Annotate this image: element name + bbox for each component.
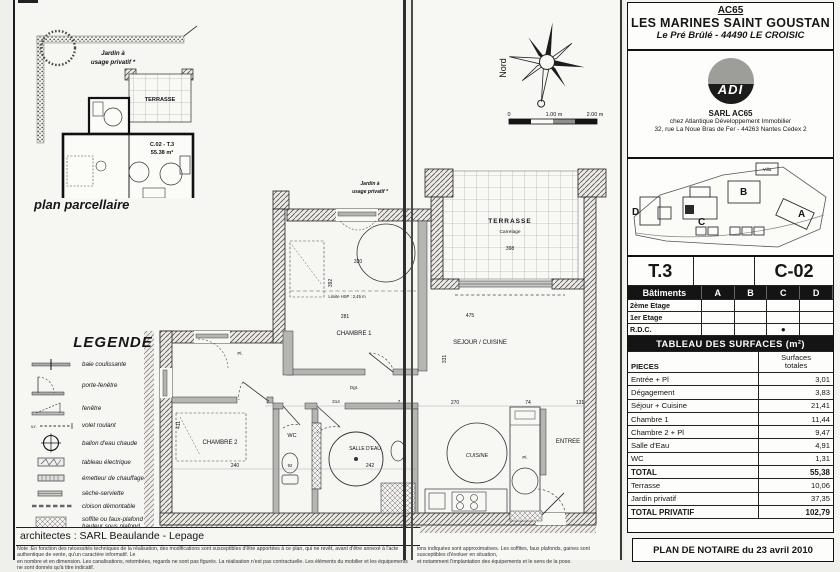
- surface-value: 37,35: [759, 493, 833, 505]
- closet-shelf: [515, 411, 535, 419]
- floor-cell: [702, 312, 735, 323]
- kitchen-sink: [429, 493, 445, 509]
- floor-row: 1er Etage: [628, 312, 833, 324]
- dim: 331: [442, 355, 448, 364]
- surfaces-title: TABLEAU DES SURFACES (m²): [628, 336, 833, 352]
- room-label-entree: ENTREE: [556, 439, 580, 445]
- floor-cell: [767, 312, 800, 323]
- legend-item: sèche-serviette: [24, 487, 202, 499]
- surface-value: 1,31: [759, 453, 833, 465]
- main-floor-plan: TERRASSE Carrelage Jardin à usage privat…: [140, 163, 625, 535]
- stove-burners: [457, 495, 478, 510]
- floor-label: 2ème Etage: [628, 300, 702, 311]
- page-edge-line: [13, 0, 15, 560]
- scale-bar: 0 1.00 m 2.00 m: [503, 110, 603, 128]
- unit-code: C-02: [755, 257, 833, 285]
- fine-print-right: ions indiquées sont approximatives. Les …: [417, 546, 617, 565]
- svg-text:v.r.: v.r.: [31, 424, 37, 429]
- terrace-floor: [443, 171, 578, 279]
- room-label-chambre1: CHAMBRE 1: [336, 331, 372, 337]
- dimensions: 320 281 392 475 398 331 240 411 92 242 7…: [176, 246, 584, 469]
- surface-label: Jardin privatif: [628, 493, 759, 505]
- removable-partition-icon: [24, 501, 82, 511]
- surface-value: 11,44: [759, 413, 833, 425]
- dim: 281: [341, 314, 350, 320]
- room-label-salle-eau: SALLE D'EAU: [349, 446, 381, 452]
- notary-plan-stamp: PLAN DE NOTAIRE du 23 avril 2010: [632, 538, 834, 562]
- dim: 475: [466, 313, 475, 319]
- dim: 398: [506, 246, 515, 252]
- surface-value: 3,83: [759, 386, 833, 398]
- building-label-b: B: [740, 187, 747, 198]
- north-compass: Nord: [492, 16, 596, 108]
- wall: [552, 279, 584, 289]
- room-label-terrasse: TERRASSE: [488, 218, 531, 225]
- col-b: B: [735, 286, 768, 299]
- fold-line-right: [620, 0, 622, 560]
- surface-row: Salle d'Eau 4,91: [628, 439, 833, 452]
- unit-id-row: T.3 C-02: [628, 257, 833, 286]
- parcel-caption: plan parcellaire: [34, 197, 129, 212]
- surface-row: Entrée + Pl 3,01: [628, 373, 833, 386]
- legend-item: porte-fenêtre: [24, 373, 202, 397]
- parcel-terrace-label: TERRASSE: [145, 97, 176, 103]
- surface-row: Jardin privatif 37,35: [628, 493, 833, 506]
- legend: LEGENDE baie coulissante porte-fenêtre f…: [24, 334, 202, 541]
- partition-wc-west: [273, 409, 279, 513]
- legend-item-label: tableau électrique: [82, 459, 131, 466]
- fine-print-line: en nombre et en dimension. Les canalisat…: [17, 559, 411, 572]
- architects-credit: architectes : SARL Beaulande - Lepage: [16, 527, 420, 546]
- hedge-end-tick: [184, 26, 197, 36]
- site-plan: A B C D Villa: [628, 159, 832, 253]
- partition: [312, 409, 318, 423]
- surface-label: TOTAL: [628, 466, 759, 478]
- surfaces-col-totales: Surfaces totales: [759, 352, 833, 372]
- dim: 242: [366, 463, 375, 469]
- closet-label: Pl.: [237, 351, 242, 356]
- dim: 320: [354, 259, 363, 265]
- fine-print-left: Note :En fonction des nécessités techniq…: [17, 546, 411, 572]
- hedge-top: [37, 36, 184, 43]
- dim: 74: [525, 400, 531, 406]
- water-heater-icon: [24, 433, 82, 453]
- floor-row: 2ème Etage: [628, 300, 833, 312]
- dim: 92: [288, 463, 293, 468]
- radiator-icon: [24, 471, 82, 485]
- garden-label-line1: Jardin à: [101, 50, 125, 57]
- surface-row-total: TOTAL 55,38: [628, 466, 833, 479]
- developer-block: ADI SARL AC65 chez Atlantique Développem…: [627, 50, 834, 158]
- fold-line-left-inner: [411, 0, 413, 560]
- scale-one: 1.00 m: [546, 112, 563, 118]
- developer-line1: chez Atlantique Développement Immobilier: [628, 118, 833, 126]
- legend-item: tableau électrique: [24, 455, 202, 469]
- building-label-c: C: [698, 217, 705, 228]
- legend-item: fenêtre: [24, 399, 202, 417]
- developer-line2: 32, rue La Noue Bras de Fer - 44263 Nant…: [628, 126, 833, 134]
- legend-item: émetteur de chauffage: [24, 471, 202, 485]
- surface-label: Chambre 1: [628, 413, 759, 425]
- dim: 240: [231, 463, 240, 469]
- surface-label: Chambre 2 + Pl: [628, 426, 759, 438]
- empty-row: [628, 519, 833, 532]
- surface-row: Terrasse 10,06: [628, 479, 833, 492]
- surface-label: WC: [628, 453, 759, 465]
- project-ref: AC65: [628, 5, 833, 16]
- window: [338, 212, 376, 216]
- surface-row: Dégagement 3,83: [628, 386, 833, 399]
- floor-cell: [735, 324, 768, 335]
- floor-label: R.D.C.: [628, 324, 702, 335]
- parcel-area-label: 55.38 m²: [151, 149, 174, 156]
- shower-soffit: [381, 483, 415, 513]
- legend-item-label: ballon d'eau chaude: [82, 440, 137, 447]
- legend-item: ballon d'eau chaude: [24, 433, 202, 453]
- legend-item: cloison démontable: [24, 501, 202, 511]
- garden-label-line2: usage privatif *: [352, 189, 389, 195]
- project-title: LES MARINES SAINT GOUSTAN: [628, 16, 833, 30]
- building-label-a: A: [798, 209, 805, 220]
- kitchen-counter: [425, 489, 507, 513]
- floor-cell: [800, 300, 833, 311]
- buildings-col-label: Bâtiments: [628, 286, 702, 299]
- room-label-cuisine: CUISINE: [466, 453, 489, 459]
- terrace-post: [425, 169, 453, 197]
- fold-line-left: [403, 0, 406, 560]
- roller-shutter-icon: v.r.: [24, 419, 82, 431]
- dim: 131: [576, 400, 585, 406]
- parcel-unit-label: C.02 - T.3: [150, 142, 174, 148]
- legend-item-label: volet roulant: [82, 422, 116, 429]
- closet-entree: [510, 407, 540, 519]
- surface-label: Dégagement: [628, 386, 759, 398]
- threshold-hatch: [510, 511, 542, 521]
- scale-two: 2.00 m: [587, 112, 603, 118]
- floor-label: 1er Etage: [628, 312, 702, 323]
- wall-exterior-east: [584, 197, 596, 523]
- partition: [283, 331, 293, 375]
- room-label-degagement: Dgt.: [350, 385, 358, 390]
- closet-label: Pl.: [522, 455, 527, 460]
- partition-corridor-north: [287, 369, 365, 375]
- terrasse-finish-label: Carrelage: [499, 229, 520, 235]
- wall: [273, 209, 285, 343]
- surfaces-header-row: PIECES Surfaces totales: [628, 352, 833, 373]
- title-block-panel: AC65 LES MARINES SAINT GOUSTAN Le Pré Br…: [627, 2, 836, 534]
- surface-value: 9,47: [759, 426, 833, 438]
- villa-label: Villa: [763, 167, 772, 172]
- sliding-bay-icon: [24, 357, 82, 371]
- col-a: A: [702, 286, 735, 299]
- building-label-d: D: [632, 207, 639, 218]
- scan-corner-mark: [18, 0, 38, 3]
- legend-item-label: porte-fenêtre: [82, 382, 117, 389]
- floor-cell: [800, 324, 833, 335]
- legend-item-label: baie coulissante: [82, 361, 126, 368]
- surface-value: 3,01: [759, 373, 833, 385]
- surface-row: WC 1,31: [628, 453, 833, 466]
- garden-label-line2: usage privatif *: [91, 59, 136, 66]
- surface-label: Séjour + Cuisine: [628, 400, 759, 412]
- partition: [418, 221, 427, 371]
- legend-item-label: émetteur de chauffage: [82, 475, 144, 482]
- legend-item-label: cloison démontable: [82, 503, 135, 510]
- floor-cell: [800, 312, 833, 323]
- toilet-tank: [282, 475, 298, 484]
- adi-logo-text: ADI: [708, 82, 754, 97]
- garden-label-line1: Jardin à: [360, 181, 379, 187]
- surface-row: Chambre 2 + Pl 9,47: [628, 426, 833, 439]
- buildings-header-row: Bâtiments A B C D: [628, 286, 833, 300]
- col-c: C: [767, 286, 800, 299]
- surface-row-total-privatif: TOTAL PRIVATIF 102,79: [628, 506, 833, 519]
- project-address: Le Pré Brûlé - 44490 LE CROISIC: [628, 30, 833, 41]
- bed-diagonal: [292, 245, 322, 285]
- floor-marker: ●: [767, 324, 800, 335]
- partition-entree: [540, 409, 546, 475]
- highlighted-unit: [685, 205, 694, 214]
- fine-print-line: Note :En fonction des nécessités techniq…: [17, 546, 411, 559]
- surface-value: 102,79: [759, 506, 833, 518]
- surface-value: 21,41: [759, 400, 833, 412]
- window-icon: [24, 399, 82, 417]
- floor-cell: [735, 312, 768, 323]
- legend-item: baie coulissante: [24, 357, 202, 371]
- towel-dryer-icon: [24, 487, 82, 499]
- legend-item: v.r. volet roulant: [24, 419, 202, 431]
- closet-heater-circle: [512, 468, 538, 494]
- hsp-limit-label: Limite HSP : 2,45 m: [328, 294, 366, 299]
- col-d: D: [800, 286, 833, 299]
- surface-row: Séjour + Cuisine 21,41: [628, 400, 833, 413]
- fine-print-line: ions indiquées sont approximatives. Les …: [417, 546, 617, 559]
- surface-row: Chambre 1 11,44: [628, 413, 833, 426]
- project-header: AC65 LES MARINES SAINT GOUSTAN Le Pré Br…: [627, 2, 834, 50]
- dim: 314: [332, 399, 340, 404]
- electrical-panel-icon: [24, 455, 82, 469]
- room-label-chambre2: CHAMBRE 2: [202, 440, 238, 446]
- room-label-wc: WC: [287, 433, 296, 439]
- room-label-sejour: SEJOUR / CUISINE: [453, 340, 507, 346]
- terrace-post: [578, 169, 606, 197]
- surface-value: 10,06: [759, 479, 833, 491]
- surface-label: Entrée + Pl: [628, 373, 759, 385]
- developer-company: SARL AC65: [628, 109, 833, 118]
- dim: 270: [451, 400, 460, 406]
- water-heater-center: [354, 457, 358, 461]
- french-door-icon: [24, 373, 82, 397]
- wall: [431, 197, 443, 287]
- table-circle: [357, 224, 415, 282]
- floor-row: R.D.C. ●: [628, 324, 833, 336]
- unit-tables: T.3 C-02 Bâtiments A B C D 2ème Etage 1e…: [627, 256, 834, 533]
- surface-value: 55,38: [759, 466, 833, 478]
- surface-label: TOTAL PRIVATIF: [628, 506, 759, 518]
- surface-label: Salle d'Eau: [628, 439, 759, 451]
- north-label: Nord: [498, 58, 508, 78]
- adi-logo: ADI: [708, 58, 754, 104]
- door-arc: [198, 339, 228, 369]
- floor-cell: [735, 300, 768, 311]
- dim: 392: [328, 279, 334, 288]
- legend-item-label: fenêtre: [82, 405, 101, 412]
- unit-blank-cell: [694, 257, 756, 285]
- floor-cell: [767, 300, 800, 311]
- site-plan-box: A B C D Villa: [627, 158, 834, 256]
- surfaces-col-pieces: PIECES: [628, 352, 759, 372]
- partition: [312, 489, 318, 513]
- wall-post: [273, 191, 289, 209]
- floor-cell: [702, 300, 735, 311]
- surface-label: Terrasse: [628, 479, 759, 491]
- legend-item-label: sèche-serviette: [82, 490, 124, 497]
- wall: [431, 279, 459, 289]
- legend-title: LEGENDE: [24, 334, 202, 351]
- duct-column: [312, 423, 321, 489]
- scale-zero: 0: [507, 112, 510, 118]
- unit-type: T.3: [628, 257, 694, 285]
- surface-value: 4,91: [759, 439, 833, 451]
- floor-cell: [702, 324, 735, 335]
